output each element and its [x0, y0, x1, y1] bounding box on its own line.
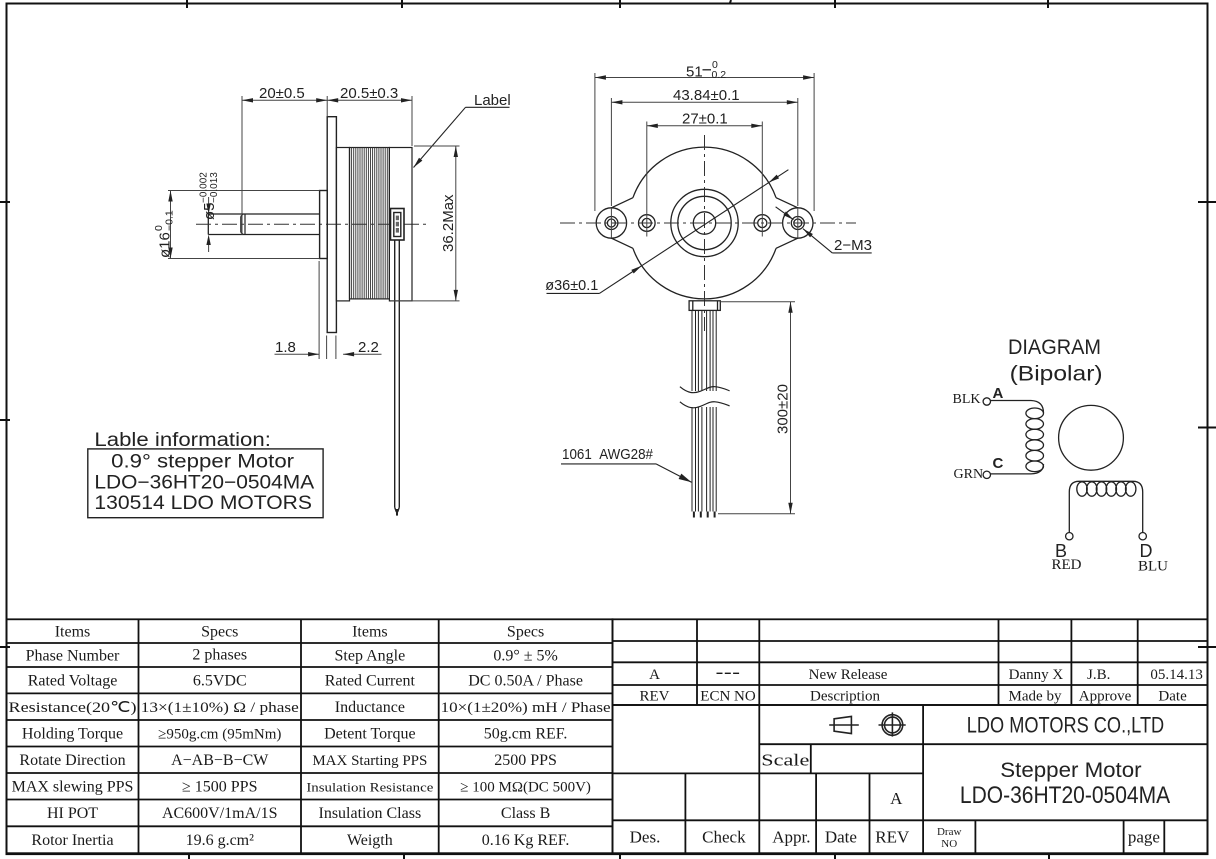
svg-text:Phase Number: Phase Number — [26, 648, 120, 665]
svg-text:Approve: Approve — [1079, 689, 1132, 705]
svg-text:6.5VDC: 6.5VDC — [193, 673, 247, 690]
svg-text:GRN: GRN — [954, 467, 984, 482]
svg-text:(Bipolar): (Bipolar) — [1010, 363, 1103, 386]
svg-text:2−M3: 2−M3 — [834, 237, 872, 254]
svg-text:−0.1: −0.1 — [164, 210, 176, 231]
svg-text:2.2: 2.2 — [358, 339, 379, 356]
svg-text:0.9° stepper Motor: 0.9° stepper Motor — [111, 452, 295, 473]
svg-text:0.16 Kg REF.: 0.16 Kg REF. — [482, 832, 570, 849]
svg-text:J.B.: J.B. — [1087, 667, 1110, 683]
svg-text:MAX slewing PPS: MAX slewing PPS — [12, 779, 134, 796]
svg-text:0.9° ± 5%: 0.9° ± 5% — [493, 648, 558, 665]
svg-text:≥950g.cm (95mNm): ≥950g.cm (95mNm) — [158, 727, 281, 743]
svg-text:Check: Check — [702, 828, 746, 847]
svg-text:Stepper Motor: Stepper Motor — [1000, 759, 1141, 782]
svg-text:C: C — [993, 455, 1004, 472]
svg-text:Specs: Specs — [201, 624, 238, 641]
svg-text:1061 AWG28#: 1061 AWG28# — [562, 446, 654, 463]
svg-text:Items: Items — [55, 624, 91, 641]
svg-text:Rated Current: Rated Current — [325, 673, 416, 690]
svg-text:page: page — [1128, 828, 1160, 847]
svg-text:Class B: Class B — [501, 805, 550, 822]
svg-text:Lable information:: Lable information: — [94, 430, 271, 451]
svg-text:20.5±0.3: 20.5±0.3 — [340, 85, 398, 102]
svg-text:19.6 g.cm²: 19.6 g.cm² — [186, 832, 255, 849]
svg-text:Danny X: Danny X — [1009, 667, 1064, 683]
svg-text:20±0.5: 20±0.5 — [259, 85, 305, 102]
svg-text:DC 0.50A / Phase: DC 0.50A / Phase — [468, 673, 583, 690]
svg-text:ø36±0.1: ø36±0.1 — [545, 277, 598, 294]
svg-text:Insulation Class: Insulation Class — [319, 805, 422, 822]
svg-text:13×(1±10%) Ω / phase: 13×(1±10%) Ω / phase — [141, 700, 299, 716]
svg-text:2500 PPS: 2500 PPS — [494, 752, 557, 769]
svg-text:0.2: 0.2 — [712, 69, 727, 81]
svg-text:ECN NO: ECN NO — [700, 689, 756, 705]
svg-text:ø16: ø16 — [157, 232, 174, 258]
svg-text:51: 51 — [686, 64, 703, 81]
svg-text:−0.013: −0.013 — [209, 172, 220, 203]
svg-text:Rotor Inertia: Rotor Inertia — [31, 832, 113, 849]
svg-text:NO: NO — [941, 838, 957, 850]
svg-text:A−AB−B−CW: A−AB−B−CW — [171, 752, 269, 769]
svg-text:Rated Voltage: Rated Voltage — [28, 673, 118, 690]
svg-text:1.8: 1.8 — [275, 339, 296, 356]
svg-text:Step Angle: Step Angle — [335, 648, 406, 665]
svg-text:A: A — [649, 667, 660, 683]
svg-text:REV: REV — [875, 828, 910, 847]
svg-text:LDO−36HT20−0504MA: LDO−36HT20−0504MA — [94, 473, 314, 494]
svg-text:Detent Torque: Detent Torque — [324, 726, 415, 743]
svg-text:Appr.: Appr. — [772, 828, 810, 847]
svg-text:BLK: BLK — [953, 392, 981, 407]
svg-text:ø5: ø5 — [201, 202, 218, 220]
svg-text:LDO MOTORS CO.,LTD: LDO MOTORS CO.,LTD — [967, 712, 1164, 737]
svg-text:2 phases: 2 phases — [192, 647, 247, 664]
svg-text:Made by: Made by — [1009, 689, 1062, 705]
svg-text:Scale: Scale — [761, 751, 809, 770]
svg-text:HI POT: HI POT — [47, 805, 98, 822]
svg-text:Rotate Direction: Rotate Direction — [19, 752, 125, 769]
svg-text:130514 LDO MOTORS: 130514 LDO MOTORS — [94, 493, 312, 514]
svg-text:AC600V/1mA/1S: AC600V/1mA/1S — [162, 805, 278, 822]
svg-text:LDO-36HT20-0504MA: LDO-36HT20-0504MA — [960, 782, 1171, 809]
svg-text:27±0.1: 27±0.1 — [682, 111, 728, 128]
svg-text:Date: Date — [825, 828, 857, 847]
svg-text:DIAGRAM: DIAGRAM — [1008, 336, 1101, 359]
svg-text:REV: REV — [640, 689, 670, 705]
svg-text:MAX Starting PPS: MAX Starting PPS — [312, 753, 427, 769]
svg-text:−0.002: −0.002 — [199, 172, 210, 203]
svg-text:Description: Description — [810, 689, 880, 705]
svg-text:Weigth: Weigth — [347, 832, 393, 849]
svg-text:BLU: BLU — [1138, 559, 1168, 575]
svg-text:36.2Max: 36.2Max — [440, 194, 457, 252]
svg-text:43.84±0.1: 43.84±0.1 — [673, 87, 740, 104]
svg-text:Inductance: Inductance — [335, 699, 405, 716]
svg-text:RED: RED — [1052, 557, 1082, 573]
svg-text:50g.cm REF.: 50g.cm REF. — [484, 726, 568, 743]
svg-text:10×(1±20%) mH / Phase: 10×(1±20%) mH / Phase — [441, 700, 611, 716]
svg-text:New Release: New Release — [809, 667, 888, 683]
svg-text:05.14.13: 05.14.13 — [1150, 667, 1203, 683]
svg-text:≥ 100 MΩ(DC 500V): ≥ 100 MΩ(DC 500V) — [460, 780, 591, 796]
svg-text:300±20: 300±20 — [775, 384, 792, 434]
svg-text:Draw: Draw — [937, 826, 961, 838]
svg-text:Specs: Specs — [507, 624, 544, 641]
svg-text:Resistance(20℃): Resistance(20℃) — [9, 700, 137, 716]
svg-text:Label: Label — [474, 92, 511, 109]
svg-text:A: A — [993, 385, 1004, 402]
svg-text:Items: Items — [352, 624, 388, 641]
svg-text:Holding Torque: Holding Torque — [22, 726, 123, 743]
svg-text:Insulation Resistance: Insulation Resistance — [306, 781, 434, 795]
svg-text:Date: Date — [1158, 689, 1187, 705]
svg-text:≥ 1500 PPS: ≥ 1500 PPS — [182, 779, 257, 796]
svg-text:A: A — [890, 789, 903, 808]
svg-text:Des.: Des. — [630, 828, 661, 847]
